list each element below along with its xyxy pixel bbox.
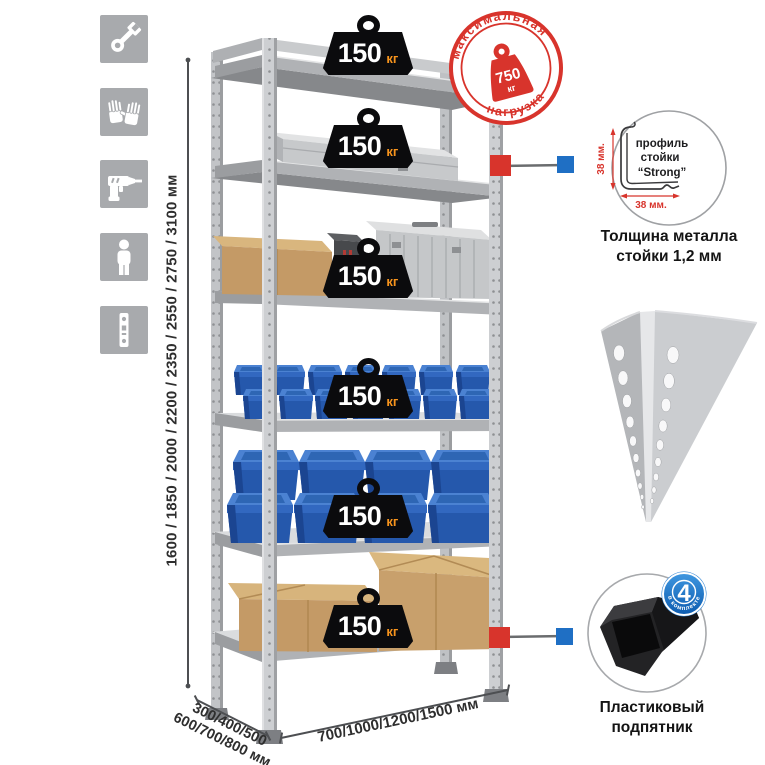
wrench-icon	[100, 15, 148, 63]
weight-badge-4: 150кг	[322, 358, 414, 418]
profile-caption: Толщина металла стойки 1,2 мм	[577, 227, 761, 267]
front-left-post	[262, 38, 277, 742]
infographic-canvas: 38 мм. 38 мм. профиль стойки “Strong”	[0, 0, 765, 765]
weight-badge-2: 150кг	[322, 108, 414, 168]
foot-callout-circle: 4 в комплекте	[588, 572, 707, 693]
weight-badge-unit: кг	[386, 514, 398, 529]
person-icon	[100, 233, 148, 281]
feature-wrench	[100, 15, 148, 63]
profile-label-line1: профиль	[636, 138, 689, 150]
feature-drill	[100, 160, 148, 208]
weight-badge-5: 150кг	[322, 478, 414, 538]
count-badge-number: 4	[677, 580, 691, 607]
weight-badge-unit: кг	[386, 51, 398, 66]
profile-label-line2: стойки	[641, 152, 680, 164]
perforated-strip-icon	[100, 306, 148, 354]
weight-badge-value: 150	[338, 131, 382, 162]
foot-callout-connector	[489, 627, 573, 648]
weight-badge-value: 150	[338, 261, 382, 292]
foot-caption: Пластиковый подпятник	[562, 698, 742, 738]
height-dimension-label: 1600 / 1850 / 2000 / 2200 / 2350 / 2550 …	[164, 41, 181, 701]
foot-caption-line1: Пластиковый	[562, 698, 742, 718]
feature-person	[100, 233, 148, 281]
gloves-icon	[100, 88, 148, 136]
max-load-stamp: максимальная нагрузка 750 кг	[432, 0, 580, 142]
count-badge: 4 в комплекте	[662, 572, 707, 617]
profile-caption-line2: стойки 1,2 мм	[577, 247, 761, 267]
feature-gloves	[100, 88, 148, 136]
weight-badge-unit: кг	[386, 144, 398, 159]
weight-badge-6: 150кг	[322, 588, 414, 648]
weight-badge-value: 150	[338, 38, 382, 69]
profile-vertical-dim-label: 38 мм.	[596, 143, 607, 175]
blue-connector-square-top	[557, 156, 574, 173]
weight-badge-unit: кг	[386, 274, 398, 289]
profile-vertical-dim: 38 мм.	[596, 128, 616, 190]
weight-badge-unit: кг	[386, 624, 398, 639]
weight-badge-value: 150	[338, 611, 382, 642]
profile-callout-connector	[490, 155, 574, 176]
weight-badge-1: 150кг	[322, 15, 414, 75]
profile-caption-line1: Толщина металла	[577, 227, 761, 247]
red-connector-square-bottom	[489, 627, 510, 648]
weight-badge-unit: кг	[386, 394, 398, 409]
profile-label-line3: “Strong”	[638, 167, 687, 179]
weight-badge-3: 150кг	[322, 238, 414, 298]
height-dimension-line	[186, 58, 191, 689]
foot-caption-line2: подпятник	[562, 718, 742, 738]
drill-icon	[100, 160, 148, 208]
weight-badge-value: 150	[338, 501, 382, 532]
red-connector-square-top	[490, 155, 511, 176]
blue-connector-square-bottom	[556, 628, 573, 645]
profile-callout-circle: 38 мм. 38 мм. профиль стойки “Strong”	[596, 111, 726, 225]
weight-badge-value: 150	[338, 381, 382, 412]
back-left-post	[211, 52, 223, 718]
profile-horizontal-dim-label: 38 мм.	[635, 200, 667, 211]
corner-post-image	[601, 311, 757, 522]
feature-perforated-strip	[100, 306, 148, 354]
front-right-post	[489, 54, 503, 701]
